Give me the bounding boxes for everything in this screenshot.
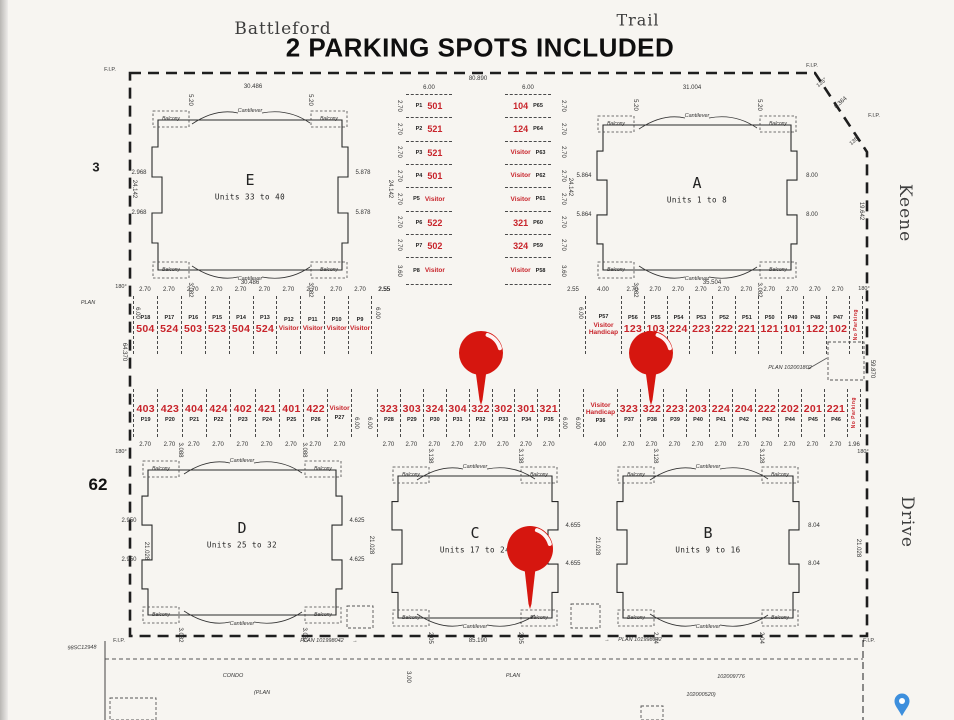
- plan-ref: PLAN: [506, 673, 520, 679]
- stall-dim: 2.70: [520, 442, 532, 448]
- stall-id: P15: [212, 315, 222, 321]
- stall-id: P33: [499, 417, 509, 423]
- building-dim: 21.028: [594, 537, 600, 555]
- spot-number: 301: [517, 403, 535, 415]
- stall-P7: P7502: [406, 234, 452, 257]
- spot-number: 502: [427, 241, 442, 251]
- building-dim: 8.04: [808, 523, 820, 529]
- fip-marker: F.I.P.: [104, 67, 116, 73]
- spot-number: 501: [427, 101, 442, 111]
- boundary-dim: 64.370: [121, 343, 127, 361]
- stall-dim: 2.70: [692, 442, 704, 448]
- stall-id: P42: [739, 417, 749, 423]
- spot-number: 322: [643, 403, 661, 415]
- stall-P14: P14504: [229, 296, 253, 354]
- stall-dim: 2.70: [560, 170, 566, 182]
- building-units-B: Units 9 to 16: [675, 545, 740, 554]
- spot-number: 321: [540, 403, 558, 415]
- spot-number: Visitor: [279, 325, 299, 332]
- building-dim: 3.128: [758, 448, 764, 463]
- spot-number: 324: [426, 403, 444, 415]
- stall-P26: 422P26: [303, 389, 327, 437]
- stall-dim: 2.70: [738, 442, 750, 448]
- angle-label: 180°: [115, 449, 126, 455]
- stall-P60: 321P60: [505, 211, 551, 234]
- boundary-dim: 31.004: [683, 85, 701, 91]
- stall-id: P55: [651, 315, 661, 321]
- stall-P40: 203P40: [686, 389, 709, 437]
- no-parking-label: No Parking: [851, 397, 857, 428]
- stall-id: P26: [311, 417, 321, 423]
- spot-number: 404: [185, 403, 203, 415]
- stall-P62: VisitorP62: [505, 164, 551, 187]
- stall-dim: 2.70: [211, 287, 223, 293]
- stall-P45: 201P45: [801, 389, 824, 437]
- stall-id: P38: [647, 417, 657, 423]
- stall-id: P46: [831, 417, 841, 423]
- spot-number: 402: [234, 403, 252, 415]
- aisle-dim: 6.00: [134, 307, 140, 319]
- spot-number: 421: [258, 403, 276, 415]
- boundary-dim: 19.642: [858, 202, 864, 220]
- fip-marker: F.I.P.: [868, 113, 880, 119]
- building-dim: 4.655: [565, 561, 580, 567]
- stall-P46: 221P46: [824, 389, 847, 437]
- stall-dim: 2.55: [378, 287, 390, 293]
- stall-P44: 202P44: [778, 389, 801, 437]
- stall-id: P63: [536, 150, 546, 156]
- stall-P42: 204P42: [732, 389, 755, 437]
- stall-id: P58: [536, 268, 546, 274]
- stall-id: P14: [236, 315, 246, 321]
- spot-number: Visitor: [350, 325, 370, 332]
- balcony-label: Balcony: [402, 615, 420, 621]
- building-dim: 4.655: [565, 523, 580, 529]
- stall-id: P31: [453, 417, 463, 423]
- building-dim: 3.088: [301, 442, 307, 457]
- balcony-label: Balcony: [152, 612, 170, 618]
- stall-dim: 2.70: [763, 287, 775, 293]
- stall-dim: 2.70: [695, 287, 707, 293]
- stall-id: P5: [413, 196, 420, 202]
- spot-number: 521: [427, 148, 442, 158]
- plan-ref: 98SC12948: [67, 644, 96, 651]
- stall-P50: P50121: [758, 296, 781, 354]
- building-dim: 2.950: [121, 518, 136, 524]
- stall-P21: 404P21: [182, 389, 206, 437]
- stall-dim: 1.96: [848, 442, 860, 448]
- building-dim: 5.878: [355, 170, 370, 176]
- spot-number: Visitor: [511, 149, 531, 156]
- angle-label: 135°: [816, 77, 829, 89]
- stall-dim: 2.70: [646, 442, 658, 448]
- spot-number: 221: [738, 323, 756, 335]
- stall-P54: P54224: [667, 296, 690, 354]
- balcony-label: Balcony: [314, 612, 332, 618]
- stall-P35: 321P35: [537, 389, 560, 437]
- stall-dim: 2.70: [334, 442, 346, 448]
- leader-arrow: →: [352, 638, 358, 644]
- stall-dim: 2.70: [784, 442, 796, 448]
- stall-id: P45: [808, 417, 818, 423]
- stall-id: P4: [416, 173, 423, 179]
- balcony-label: Balcony: [769, 267, 787, 273]
- stall-dim: 2.70: [283, 287, 295, 293]
- stall-P24: 421P24: [255, 389, 279, 437]
- stall-id: P11: [308, 317, 317, 323]
- stall-dim: 2.70: [560, 216, 566, 228]
- stall-P48: P48122: [803, 296, 826, 354]
- stall-id: P41: [716, 417, 726, 423]
- stall-id: P47: [833, 315, 843, 321]
- stall-id: P13: [260, 315, 270, 321]
- stall-P16: P16503: [181, 296, 205, 354]
- balcony-label: Balcony: [607, 267, 625, 273]
- stall-P55: P55103: [644, 296, 667, 354]
- stall-dim: 2.70: [259, 287, 271, 293]
- fip-marker: F.I.P.: [863, 638, 875, 644]
- balcony-label: Balcony: [320, 267, 338, 273]
- stall-id: P16: [188, 315, 198, 321]
- angle-label: 180°: [858, 286, 869, 292]
- stall-id: P48: [810, 315, 820, 321]
- spot-number: 104: [513, 101, 528, 111]
- no-parking-strip: No Parking: [847, 389, 861, 437]
- stall-P11: P11Visitor: [300, 296, 324, 354]
- building-dim: 21.028: [855, 539, 861, 557]
- plan-number: PLAN 101998042: [300, 638, 343, 644]
- stall-P6: P6522: [406, 211, 452, 234]
- angle-label: 135°: [849, 135, 862, 147]
- stall-dim: 2.70: [139, 442, 151, 448]
- spot-number: 423: [161, 403, 179, 415]
- page-title: 2 PARKING SPOTS INCLUDED: [286, 33, 675, 64]
- building-dim: 21.028: [143, 542, 149, 560]
- building-units-D: Units 25 to 32: [207, 541, 277, 550]
- stall-id: P60: [533, 220, 543, 226]
- angle-label: 180°: [857, 449, 868, 455]
- leader-arrow: →: [604, 637, 610, 643]
- stall-P57: P57VisitorHandicap: [585, 296, 621, 354]
- building-dim: 2.950: [121, 557, 136, 563]
- spot-number: 123: [624, 323, 642, 335]
- building-dim: 5.878: [355, 210, 370, 216]
- stall-id: P23: [238, 417, 248, 423]
- building-dim: 3.088: [177, 442, 183, 457]
- spot-number: 323: [620, 403, 638, 415]
- building-dim: 4.625: [349, 518, 364, 524]
- spot-number: Visitor: [425, 267, 445, 274]
- stall-dim: 2.70: [718, 287, 730, 293]
- stall-dim: 2.70: [627, 287, 639, 293]
- building-letter-A: A: [692, 174, 701, 192]
- stall-P12: P12Visitor: [276, 296, 300, 354]
- stall-id: P28: [384, 417, 394, 423]
- spot-number: Visitor: [327, 325, 347, 332]
- stall-P52: P52222: [712, 296, 735, 354]
- spot-number: 403: [136, 403, 154, 415]
- stall-id: P3: [416, 150, 423, 156]
- balcony-label: Balcony: [530, 615, 548, 621]
- stall-dim: 2.70: [560, 146, 566, 158]
- spot-number: 222: [758, 403, 776, 415]
- stall-P4: P4501: [406, 164, 452, 187]
- stall-P9: P9Visitor: [348, 296, 372, 354]
- stall-dim: 2.55: [567, 287, 579, 293]
- spot-number: Visitor: [425, 196, 445, 203]
- stall-dim: 2.70: [786, 287, 798, 293]
- stall-P56: P56123: [621, 296, 644, 354]
- stall-id: P12: [284, 317, 294, 323]
- building-dim: 8.00: [806, 173, 818, 179]
- building-dim: 3.138: [427, 448, 433, 463]
- stall-P53: P53223: [689, 296, 712, 354]
- stall-dim: 2.70: [497, 442, 509, 448]
- building-dim: 3.082: [177, 627, 183, 642]
- lot-number-62: 62: [89, 475, 108, 495]
- stall-id: P51: [742, 315, 752, 321]
- building-dim: 5.20: [632, 99, 638, 111]
- balcony-label: Balcony: [769, 121, 787, 127]
- stall-dim: 4.00: [594, 442, 606, 448]
- stall-dim: 2.70: [560, 100, 566, 112]
- stall-dim: 2.70: [560, 193, 566, 205]
- spot-number: 422: [307, 403, 325, 415]
- building-letter-C: C: [470, 524, 479, 542]
- cantilever-label: Cantilever: [685, 113, 710, 119]
- stall-dim: 2.70: [237, 442, 249, 448]
- stall-P59: 324P59: [505, 234, 551, 257]
- cantilever-label: Cantilever: [463, 624, 488, 630]
- stall-dim: 2.70: [383, 442, 395, 448]
- spot-number: 304: [448, 403, 466, 415]
- stall-dim: 2.70: [428, 442, 440, 448]
- stall-P32: 322P32: [469, 389, 492, 437]
- stall-id: P65: [533, 103, 543, 109]
- balcony-label: Balcony: [771, 472, 789, 478]
- stall-dim: 2.70: [396, 240, 402, 252]
- cantilever-label: Cantilever: [696, 624, 721, 630]
- plan-ref: PLAN 102001802: [768, 365, 811, 371]
- building-dim: 5.864: [576, 212, 591, 218]
- plan-ref: (PLAN: [254, 690, 270, 696]
- spot-number: 221: [827, 403, 845, 415]
- aisle-dim: 6.00: [366, 417, 372, 429]
- aisle-dim: 6.00: [574, 417, 580, 429]
- spot-number: 103: [646, 323, 664, 335]
- aisle-dim: 6.00: [423, 85, 435, 91]
- spot-number: 504: [232, 323, 250, 335]
- spot-number: 223: [692, 323, 710, 335]
- spot-number: 122: [806, 323, 824, 335]
- stall-id: P20: [165, 417, 175, 423]
- stall-id: P49: [788, 315, 798, 321]
- building-dim: 8.04: [808, 561, 820, 567]
- street-name-keene: Keene: [895, 184, 915, 242]
- cantilever-label: Cantilever: [230, 621, 255, 627]
- balcony-label: Balcony: [607, 121, 625, 127]
- building-dim: 2.968: [131, 210, 146, 216]
- boundary-dim: 30.486: [244, 84, 262, 90]
- stall-P19: 403P19: [133, 389, 157, 437]
- stall-P49: P49101: [781, 296, 804, 354]
- stall-id: P59: [533, 243, 543, 249]
- stall-id: P30: [430, 417, 440, 423]
- stall-id: P27: [335, 415, 345, 421]
- balcony-label: Balcony: [152, 466, 170, 472]
- stall-dim: 2.70: [406, 442, 418, 448]
- no-parking-label: No Parking: [853, 309, 859, 340]
- spot-number: 302: [494, 403, 512, 415]
- stall-P10: P10Visitor: [324, 296, 348, 354]
- boundary-dim: 24.142: [387, 180, 393, 198]
- spot-number: 524: [160, 323, 178, 335]
- stall-P39: 223P39: [663, 389, 686, 437]
- stall-id: P53: [696, 315, 706, 321]
- spot-number: 424: [209, 403, 227, 415]
- spot-number: 522: [427, 218, 442, 228]
- building-dim: 5.864: [576, 173, 591, 179]
- stall-id: P6: [416, 220, 423, 226]
- plan-number: PLAN 101998042: [618, 637, 661, 643]
- stall-dim: 2.70: [474, 442, 486, 448]
- stall-dim: 2.70: [672, 287, 684, 293]
- fip-marker: F.I.P.: [113, 638, 125, 644]
- building-dim: 5.20: [187, 94, 193, 106]
- building-dim: 2.05: [427, 632, 433, 644]
- stall-dim: 2.70: [396, 100, 402, 112]
- boundary-dim: 8.364: [833, 96, 848, 111]
- stall-dim: 2.70: [649, 287, 661, 293]
- stall-P22: 424P22: [206, 389, 230, 437]
- balcony-label: Balcony: [162, 267, 180, 273]
- stall-id: P7: [416, 243, 423, 249]
- stall-P34: 301P34: [514, 389, 537, 437]
- stall-P1: P1501: [406, 94, 452, 117]
- spot-number: 201: [804, 403, 822, 415]
- boundary-dim: 24.142: [567, 178, 573, 196]
- building-letter-E: E: [245, 171, 254, 189]
- spot-number: 321: [513, 218, 528, 228]
- stall-id: P22: [214, 417, 224, 423]
- building-dim: 2.05: [517, 632, 523, 644]
- spot-number: 323: [380, 403, 398, 415]
- stall-dim: 4.00: [597, 287, 609, 293]
- stall-dim: 2.70: [807, 442, 819, 448]
- stall-dim: 2.70: [163, 287, 175, 293]
- aisle-dim: 6.00: [353, 417, 359, 429]
- stall-P13: P13524: [253, 296, 277, 354]
- stall-id: P37: [624, 417, 634, 423]
- building-units-C: Units 17 to 24: [440, 545, 510, 554]
- stall-P29: 303P29: [400, 389, 423, 437]
- building-dim: 3.138: [517, 448, 523, 463]
- stall-dim: 2.70: [354, 287, 366, 293]
- balcony-label: Balcony: [530, 472, 548, 478]
- stall-id: P2: [416, 126, 423, 132]
- balcony-label: Balcony: [162, 116, 180, 122]
- stall-dim: 2.70: [139, 287, 151, 293]
- spot-number: 203: [689, 403, 707, 415]
- stall-id: P43: [762, 417, 772, 423]
- aisle-dim: 6.00: [522, 85, 534, 91]
- spot-number: 401: [282, 403, 300, 415]
- stall-P17: P17524: [157, 296, 181, 354]
- condo-label: CONDO: [223, 673, 243, 679]
- spot-number: 521: [427, 124, 442, 134]
- spot-number: 322: [471, 403, 489, 415]
- stall-P20: 423P20: [157, 389, 181, 437]
- stall-dim: 2.70: [285, 442, 297, 448]
- spot-number: 204: [735, 403, 753, 415]
- spot-number: 503: [184, 323, 202, 335]
- stall-P33: 302P33: [492, 389, 515, 437]
- stall-dim: 2.70: [261, 442, 273, 448]
- angle-label: 180°: [115, 284, 126, 290]
- spot-number: VisitorHandicap: [586, 402, 615, 417]
- spot-number: 504: [136, 323, 154, 335]
- spot-number: 124: [513, 124, 528, 134]
- cantilever-label: Cantilever: [238, 108, 263, 114]
- stall-dim: 2.70: [560, 240, 566, 252]
- stall-P8: P8Visitor: [406, 257, 452, 285]
- stall-dim: 2.70: [187, 287, 199, 293]
- plan-ref: 102009776: [717, 674, 745, 680]
- street-name-trail: Trail: [616, 11, 659, 30]
- stall-id: P24: [262, 417, 272, 423]
- stall-id: P8: [413, 268, 420, 274]
- stall-id: P9: [357, 317, 364, 323]
- building-dim: 5.20: [307, 94, 313, 106]
- stall-P41: 224P41: [709, 389, 732, 437]
- stall-id: P21: [189, 417, 199, 423]
- stall-id: P10: [332, 317, 342, 323]
- stall-dim: 2.70: [306, 287, 318, 293]
- site-plan-page: Battleford Trail 2 PARKING SPOTS INCLUDE…: [0, 0, 954, 720]
- stall-P18: P18504: [133, 296, 157, 354]
- stall-dim: 2.70: [830, 442, 842, 448]
- stall-P38: 322P38: [640, 389, 663, 437]
- stall-dim: 2.70: [396, 216, 402, 228]
- stall-P5: P5Visitor: [406, 187, 452, 210]
- building-dim: 21.028: [368, 536, 374, 554]
- stall-dim: 2.70: [396, 146, 402, 158]
- boundary-dim: 80.890: [469, 76, 487, 82]
- spot-number: Visitor: [329, 405, 349, 412]
- stall-P65: 104P65: [505, 94, 551, 117]
- stall-dim: 2.70: [330, 287, 342, 293]
- stall-id: P36: [596, 418, 606, 424]
- balcony-label: Balcony: [402, 472, 420, 478]
- stall-id: P61: [536, 196, 546, 202]
- building-dim: 2.04: [758, 632, 764, 644]
- stall-id: P62: [536, 173, 546, 179]
- stall-dim: 3.60: [396, 265, 402, 277]
- stall-id: P34: [521, 417, 531, 423]
- building-dim: 8.00: [806, 212, 818, 218]
- spot-number: Visitor: [511, 196, 531, 203]
- spot-number: 202: [781, 403, 799, 415]
- stall-id: P39: [670, 417, 680, 423]
- boundary-dim: 24.142: [131, 180, 137, 198]
- balcony-label: Balcony: [771, 615, 789, 621]
- plan-ref: 102000520): [686, 692, 715, 698]
- spot-number: 224: [712, 403, 730, 415]
- stall-dim: 2.70: [164, 442, 176, 448]
- plan-word-left: PLAN: [81, 300, 95, 306]
- stall-id: P57: [599, 314, 609, 320]
- stall-P51: P51221: [735, 296, 758, 354]
